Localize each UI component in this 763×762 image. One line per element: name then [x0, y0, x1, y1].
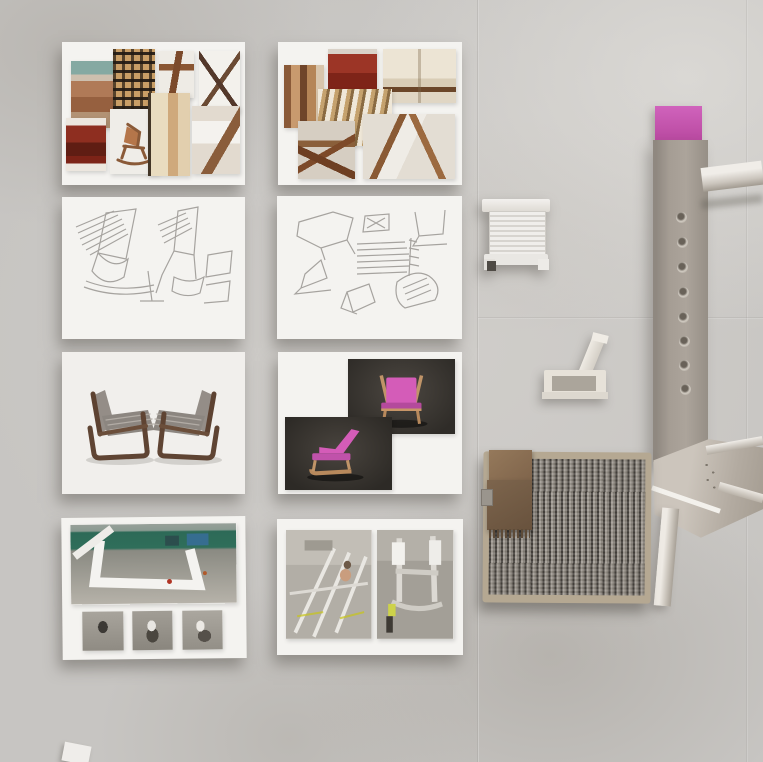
photo-low-lounge-chair [363, 114, 455, 180]
paper-corner [61, 742, 91, 762]
drill-hole [678, 312, 689, 323]
drill-hole [680, 384, 691, 395]
foam-chair-maquette [540, 334, 612, 402]
taped-frame-photo [377, 530, 453, 639]
stamped-marks [700, 462, 722, 492]
photo-test-sit-2 [132, 611, 173, 651]
pencil-sketches [62, 197, 245, 339]
photo-frame-taped [377, 530, 453, 639]
pink-chair-side [285, 417, 392, 489]
sketchboard-left [62, 197, 245, 339]
two-chairs-render [62, 352, 245, 494]
maquette-seat-opening [552, 376, 596, 391]
metal-chair-armrest [701, 161, 763, 192]
workshop-main-photo [71, 523, 237, 604]
workshop-left-board [61, 516, 246, 660]
photo-folding-chair [199, 51, 239, 114]
metal-chair-backrest-bar [653, 140, 708, 462]
photo-white-frame-canopy [71, 523, 237, 604]
floor-seam-vertical [477, 0, 479, 762]
photo-wood-stool [159, 51, 194, 98]
photo-slat-panel [148, 93, 190, 176]
model-ribbed-seat [489, 211, 546, 257]
drill-hole [677, 262, 688, 273]
render-pair-board [62, 352, 245, 494]
pencil-sketches [277, 196, 462, 339]
sketchboard-right [277, 196, 462, 339]
drill-hole [676, 212, 687, 223]
moodboard-left-board [62, 42, 245, 185]
model-foot [538, 259, 549, 270]
drill-hole [679, 360, 690, 371]
moodboard-right-board [278, 42, 462, 185]
photo-test-sit-1 [82, 611, 123, 651]
floor-seam-vertical [746, 0, 748, 762]
render-pink-side [285, 417, 392, 489]
photo-beige-lounge [383, 49, 457, 103]
photo-cane-chair [298, 121, 355, 180]
maquette-front-rail [542, 392, 608, 399]
leather-swatch [489, 450, 532, 484]
drill-hole [677, 237, 688, 248]
welding-photo [286, 530, 372, 639]
photo-cushion-chair [192, 106, 240, 173]
printed-chair-model [486, 199, 546, 267]
photo-frame-welding [286, 530, 372, 639]
drill-hole [678, 287, 689, 298]
workshop-right-board [277, 519, 463, 655]
studio-photo [0, 0, 763, 762]
sample-clip [481, 489, 493, 506]
metal-chair-pink-pad [655, 106, 702, 142]
render-pink-board [278, 352, 462, 494]
photo-test-sit-3 [182, 610, 223, 650]
armrest-shadow [701, 194, 763, 209]
drill-hole [679, 336, 690, 347]
metal-chair-front-leg [654, 507, 679, 606]
photo-red-chair [66, 118, 106, 171]
model-foot-shadow [487, 261, 496, 271]
floor-seam-horizontal [478, 317, 763, 319]
leather-swatch [487, 480, 532, 530]
